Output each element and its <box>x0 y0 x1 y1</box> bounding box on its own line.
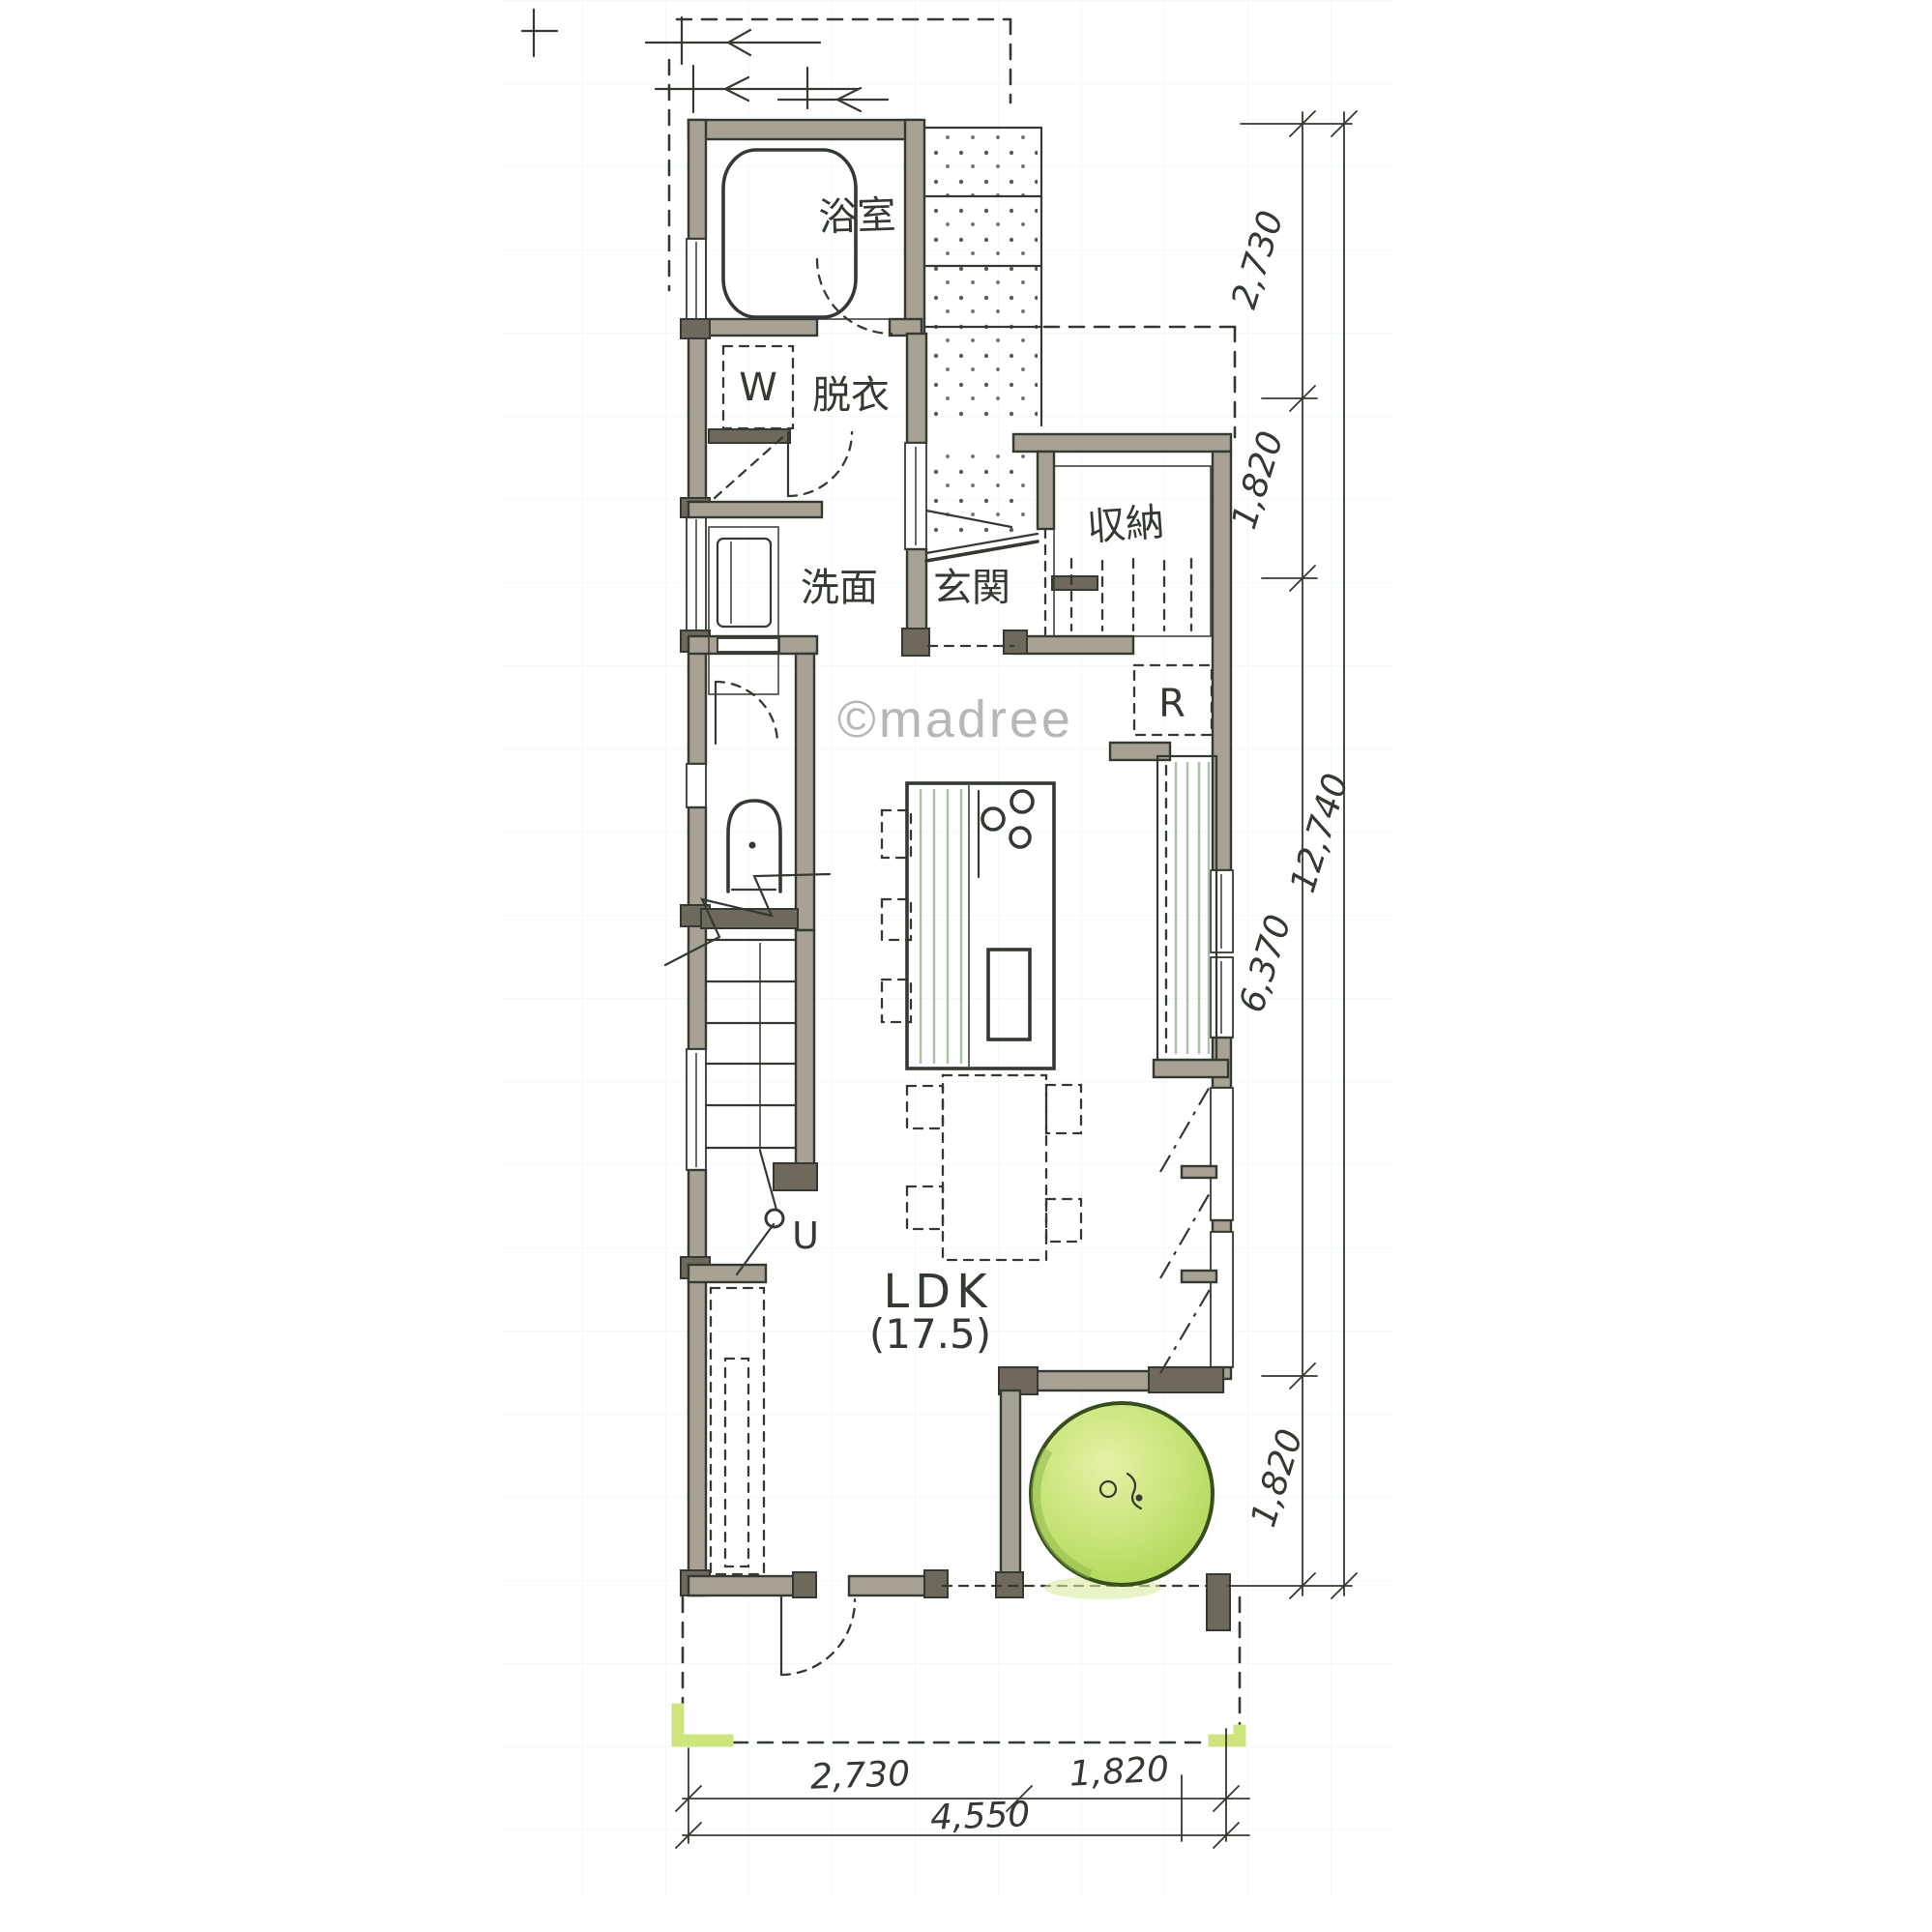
wall-segment <box>1013 434 1231 452</box>
wall-segment <box>688 120 706 239</box>
wall-segment <box>907 549 926 636</box>
label-refrigerator: R <box>1158 682 1186 726</box>
door-opening <box>717 638 779 652</box>
wall-segment <box>1001 1390 1020 1576</box>
wall-segment <box>688 321 706 515</box>
porch-tile <box>926 447 1035 536</box>
label-bathroom: 浴室 <box>818 193 897 241</box>
floor-plan-page: 2,730 1,820 6,370 1,820 12,740 2,730 1,8… <box>0 0 1932 1932</box>
label-storage: 収納 <box>1086 500 1166 549</box>
label-entrance: 玄関 <box>933 566 1010 610</box>
wall-segment <box>688 1265 766 1282</box>
label-stairs-up: U <box>792 1215 819 1257</box>
wall-segment <box>701 909 798 928</box>
wall-segment <box>688 502 822 517</box>
dim-bottom-2: 1,820 <box>1068 1749 1170 1794</box>
porch-tile <box>923 135 1038 422</box>
window <box>687 764 706 807</box>
wall-segment <box>1038 452 1054 529</box>
wall-segment <box>1110 743 1170 760</box>
floor-plan-canvas: 2,730 1,820 6,370 1,820 12,740 2,730 1,8… <box>0 0 1932 1932</box>
wall-segment <box>907 334 926 443</box>
wall-segment <box>688 1170 706 1595</box>
window <box>1211 1232 1233 1367</box>
label-washroom: 洗面 <box>801 566 878 610</box>
window <box>1211 1088 1233 1220</box>
dim-bottom-1: 2,730 <box>809 1754 910 1798</box>
label-washer: W <box>739 366 777 410</box>
label-ldk-area: (17.5) <box>869 1310 991 1358</box>
wall-segment <box>1013 636 1133 654</box>
wall-segment <box>1154 1060 1228 1077</box>
wall-segment <box>796 930 814 1165</box>
wall-segment <box>905 120 924 335</box>
watermark: ©madree <box>837 690 1073 748</box>
label-dressing: 脱衣 <box>812 373 890 418</box>
wall-segment <box>688 120 922 139</box>
dim-bottom-total: 4,550 <box>929 1795 1030 1838</box>
wall-segment <box>796 654 814 930</box>
wall-segment <box>1213 1220 1231 1232</box>
